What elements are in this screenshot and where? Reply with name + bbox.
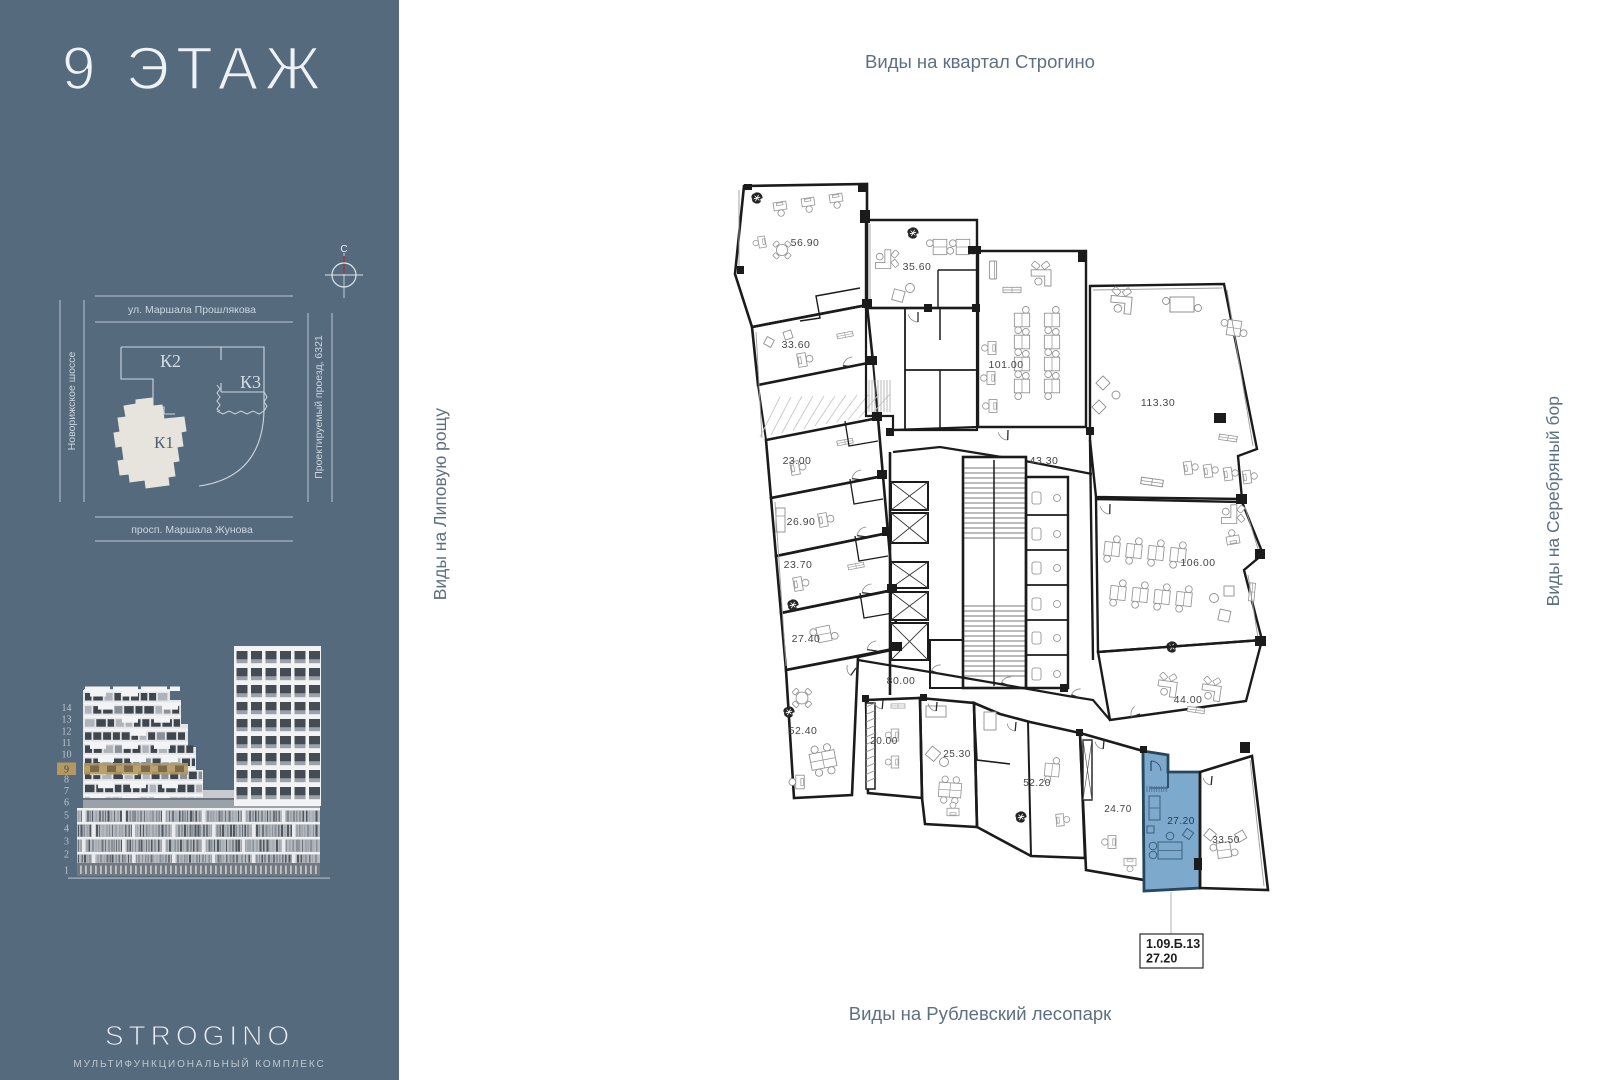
svg-text:106.00: 106.00 <box>1180 557 1215 569</box>
svg-text:33.60: 33.60 <box>782 339 811 351</box>
svg-text:52.40: 52.40 <box>789 725 818 737</box>
svg-text:33.50: 33.50 <box>1212 835 1240 846</box>
svg-text:24.70: 24.70 <box>1104 804 1132 815</box>
svg-text:35.60: 35.60 <box>903 261 932 273</box>
svg-text:26.90: 26.90 <box>787 516 816 528</box>
svg-text:101.00: 101.00 <box>988 359 1023 371</box>
svg-text:1.09.Б.13: 1.09.Б.13 <box>1146 937 1200 951</box>
svg-text:52.20: 52.20 <box>1023 778 1051 789</box>
svg-text:56.90: 56.90 <box>791 237 820 249</box>
svg-text:20.00: 20.00 <box>870 736 898 747</box>
svg-text:27.20: 27.20 <box>1146 952 1177 966</box>
svg-text:23.00: 23.00 <box>783 455 812 467</box>
svg-text:80.00: 80.00 <box>887 675 916 687</box>
svg-text:27.40: 27.40 <box>792 633 821 645</box>
svg-text:25.30: 25.30 <box>943 749 971 760</box>
svg-text:44.00: 44.00 <box>1174 694 1203 706</box>
svg-text:23.70: 23.70 <box>784 559 813 571</box>
svg-text:27.20: 27.20 <box>1167 816 1195 827</box>
svg-text:43.30: 43.30 <box>1030 455 1059 467</box>
svg-text:113.30: 113.30 <box>1141 397 1175 409</box>
